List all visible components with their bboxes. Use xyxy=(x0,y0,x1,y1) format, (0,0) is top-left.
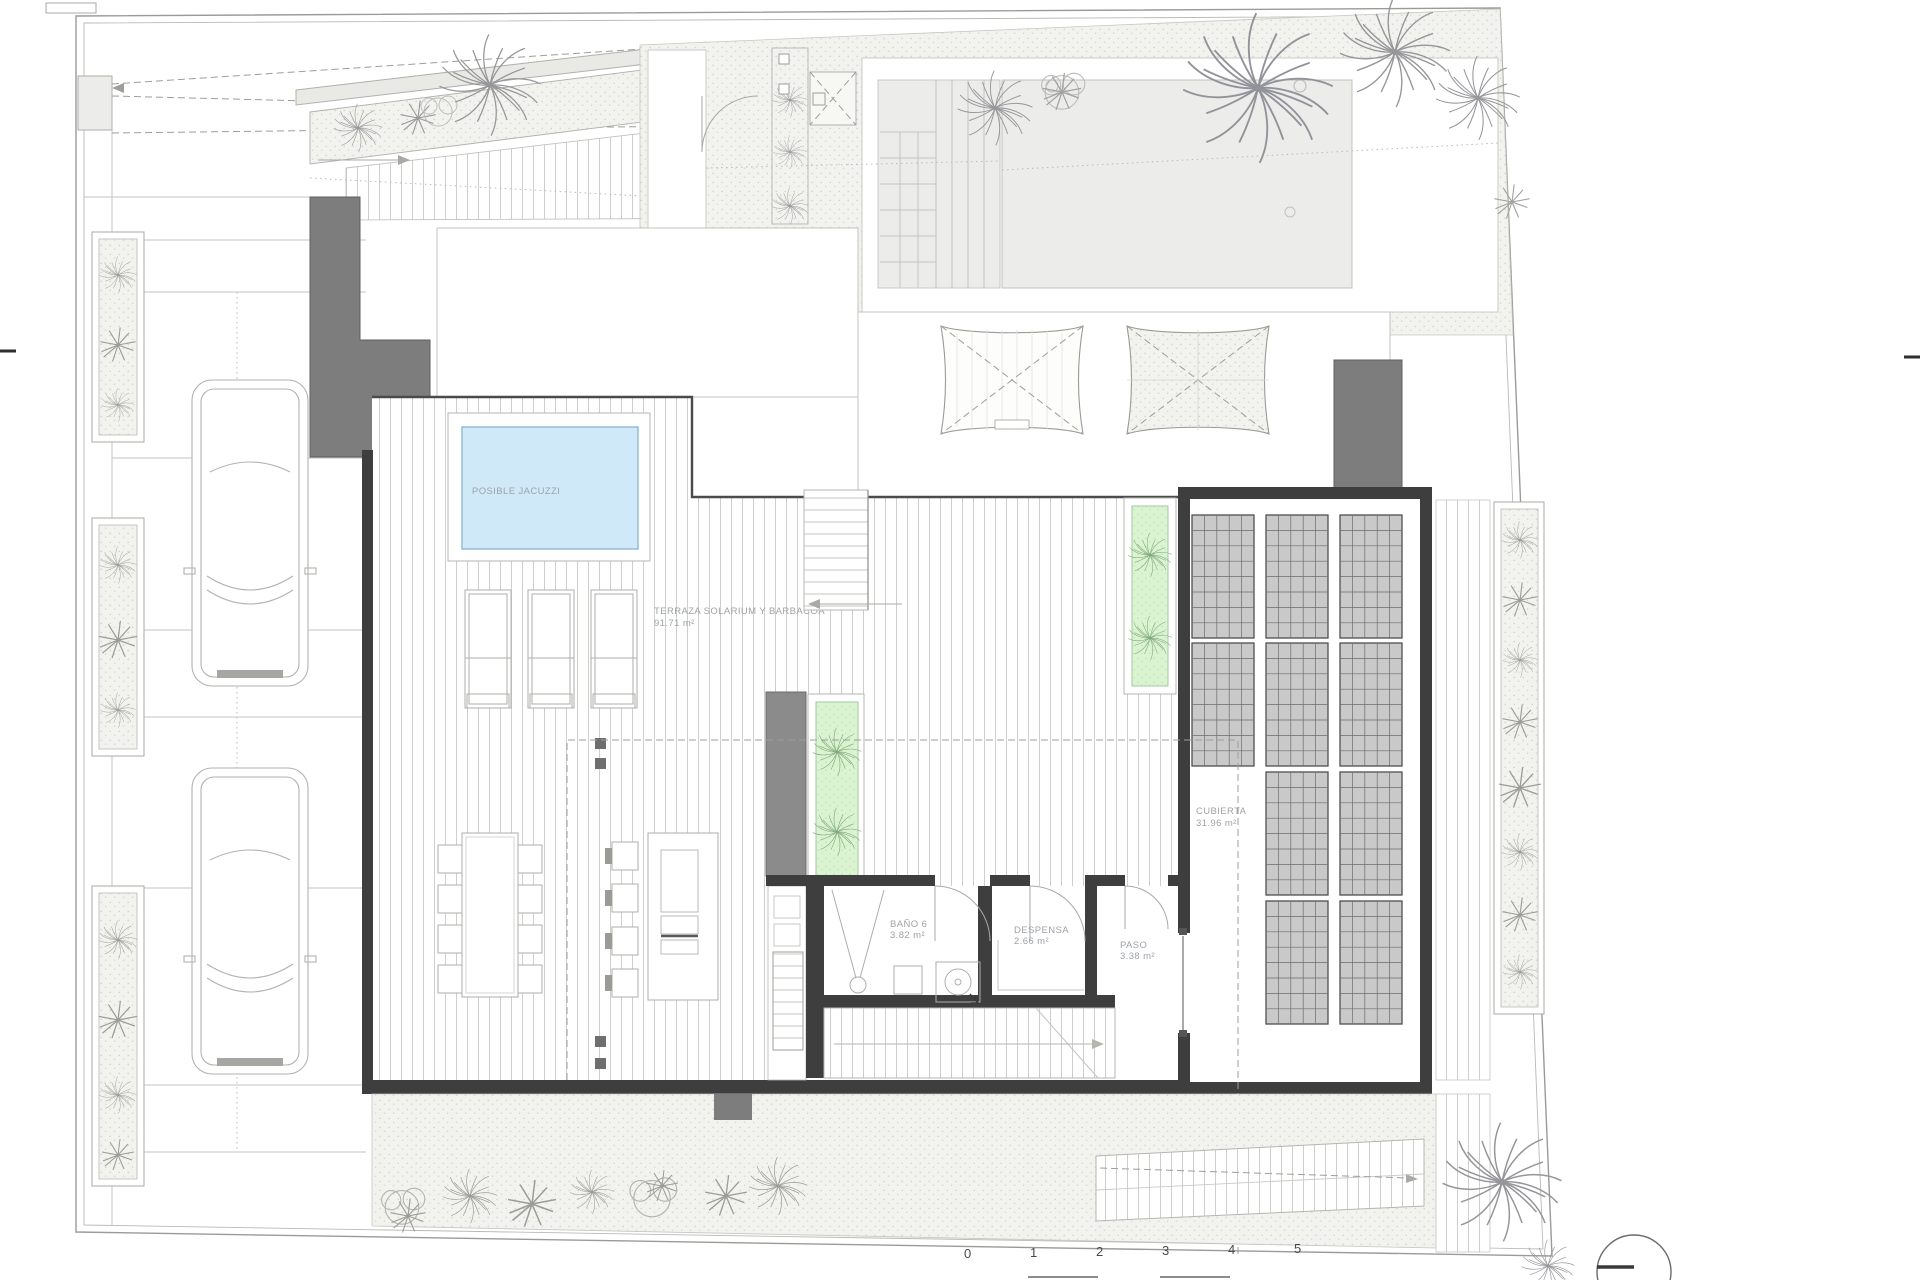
scale-tick-5: 5 xyxy=(1294,1241,1301,1256)
garden-terrace xyxy=(372,1094,1436,1248)
pillow-skylight-1 xyxy=(941,326,1083,434)
roof-block-4 xyxy=(766,692,806,876)
pillow-skylight-2 xyxy=(1127,326,1269,434)
sun-lounger-1 xyxy=(465,590,511,708)
planter-strip-right xyxy=(1494,502,1544,1014)
cubierta-label: CUBIERTA xyxy=(1196,806,1247,817)
bath-area: 3.82 m² xyxy=(890,930,925,941)
car-top-view-1 xyxy=(184,380,316,686)
scale-tick-3: 3 xyxy=(1162,1243,1169,1258)
terrace-area: 91.71 m² xyxy=(654,618,695,629)
scale-tick-0: 0 xyxy=(964,1246,971,1261)
door-opening xyxy=(1176,933,1192,1033)
hall-area: 3.38 m² xyxy=(1120,951,1155,962)
green-planter-2 xyxy=(1124,498,1176,694)
terrace-label: TERRAZA SOLARIUM Y BARBACOA xyxy=(654,606,825,617)
car-top-view-2 xyxy=(184,768,316,1074)
scale-tick-4: 4 xyxy=(1228,1242,1235,1257)
sun-lounger-3 xyxy=(591,590,637,708)
cubierta-area: 31.96 m² xyxy=(1196,818,1237,829)
scale-tick-1: 1 xyxy=(1030,1245,1037,1260)
stair-lower xyxy=(824,1008,1115,1078)
planter-strip-left-1 xyxy=(92,232,144,442)
pantry-label: DESPENSA xyxy=(1014,925,1069,936)
green-planter-1 xyxy=(808,694,864,882)
planter-strip-left-2 xyxy=(92,518,144,756)
tech-shaft xyxy=(768,886,806,1080)
floor-plan-page: POSIBLE JACUZZI TERRAZA SOLARIUM Y BARBA… xyxy=(0,0,1920,1280)
lower-level-room xyxy=(878,80,1000,288)
scale-tick-2: 2 xyxy=(1096,1244,1103,1259)
sun-lounger-2 xyxy=(528,590,574,708)
kitchen-island xyxy=(648,833,718,1000)
roof-cubierta: CUBIERTA 31.96 m² xyxy=(1176,493,1426,1088)
floor-plan-svg: POSIBLE JACUZZI TERRAZA SOLARIUM Y BARBA… xyxy=(0,0,1920,1280)
planter-strip-left-3 xyxy=(92,886,144,1186)
service-rooms: BAÑO 6 3.82 m² DESPENSA 2.66 m² PASO 3.3… xyxy=(766,875,1190,1080)
pantry-area: 2.66 m² xyxy=(1014,936,1049,947)
upper-planter xyxy=(772,48,808,224)
hall-label: PASO xyxy=(1120,940,1147,951)
jacuzzi: POSIBLE JACUZZI xyxy=(448,413,650,561)
roof-block-3 xyxy=(714,1094,752,1120)
entry-pillar xyxy=(78,76,112,130)
roof-skylight xyxy=(810,72,856,125)
jacuzzi-label: POSIBLE JACUZZI xyxy=(472,486,560,497)
deck-left-wall xyxy=(362,450,373,1082)
roof-block-2 xyxy=(1334,360,1402,497)
bath-label: BAÑO 6 xyxy=(890,919,927,930)
